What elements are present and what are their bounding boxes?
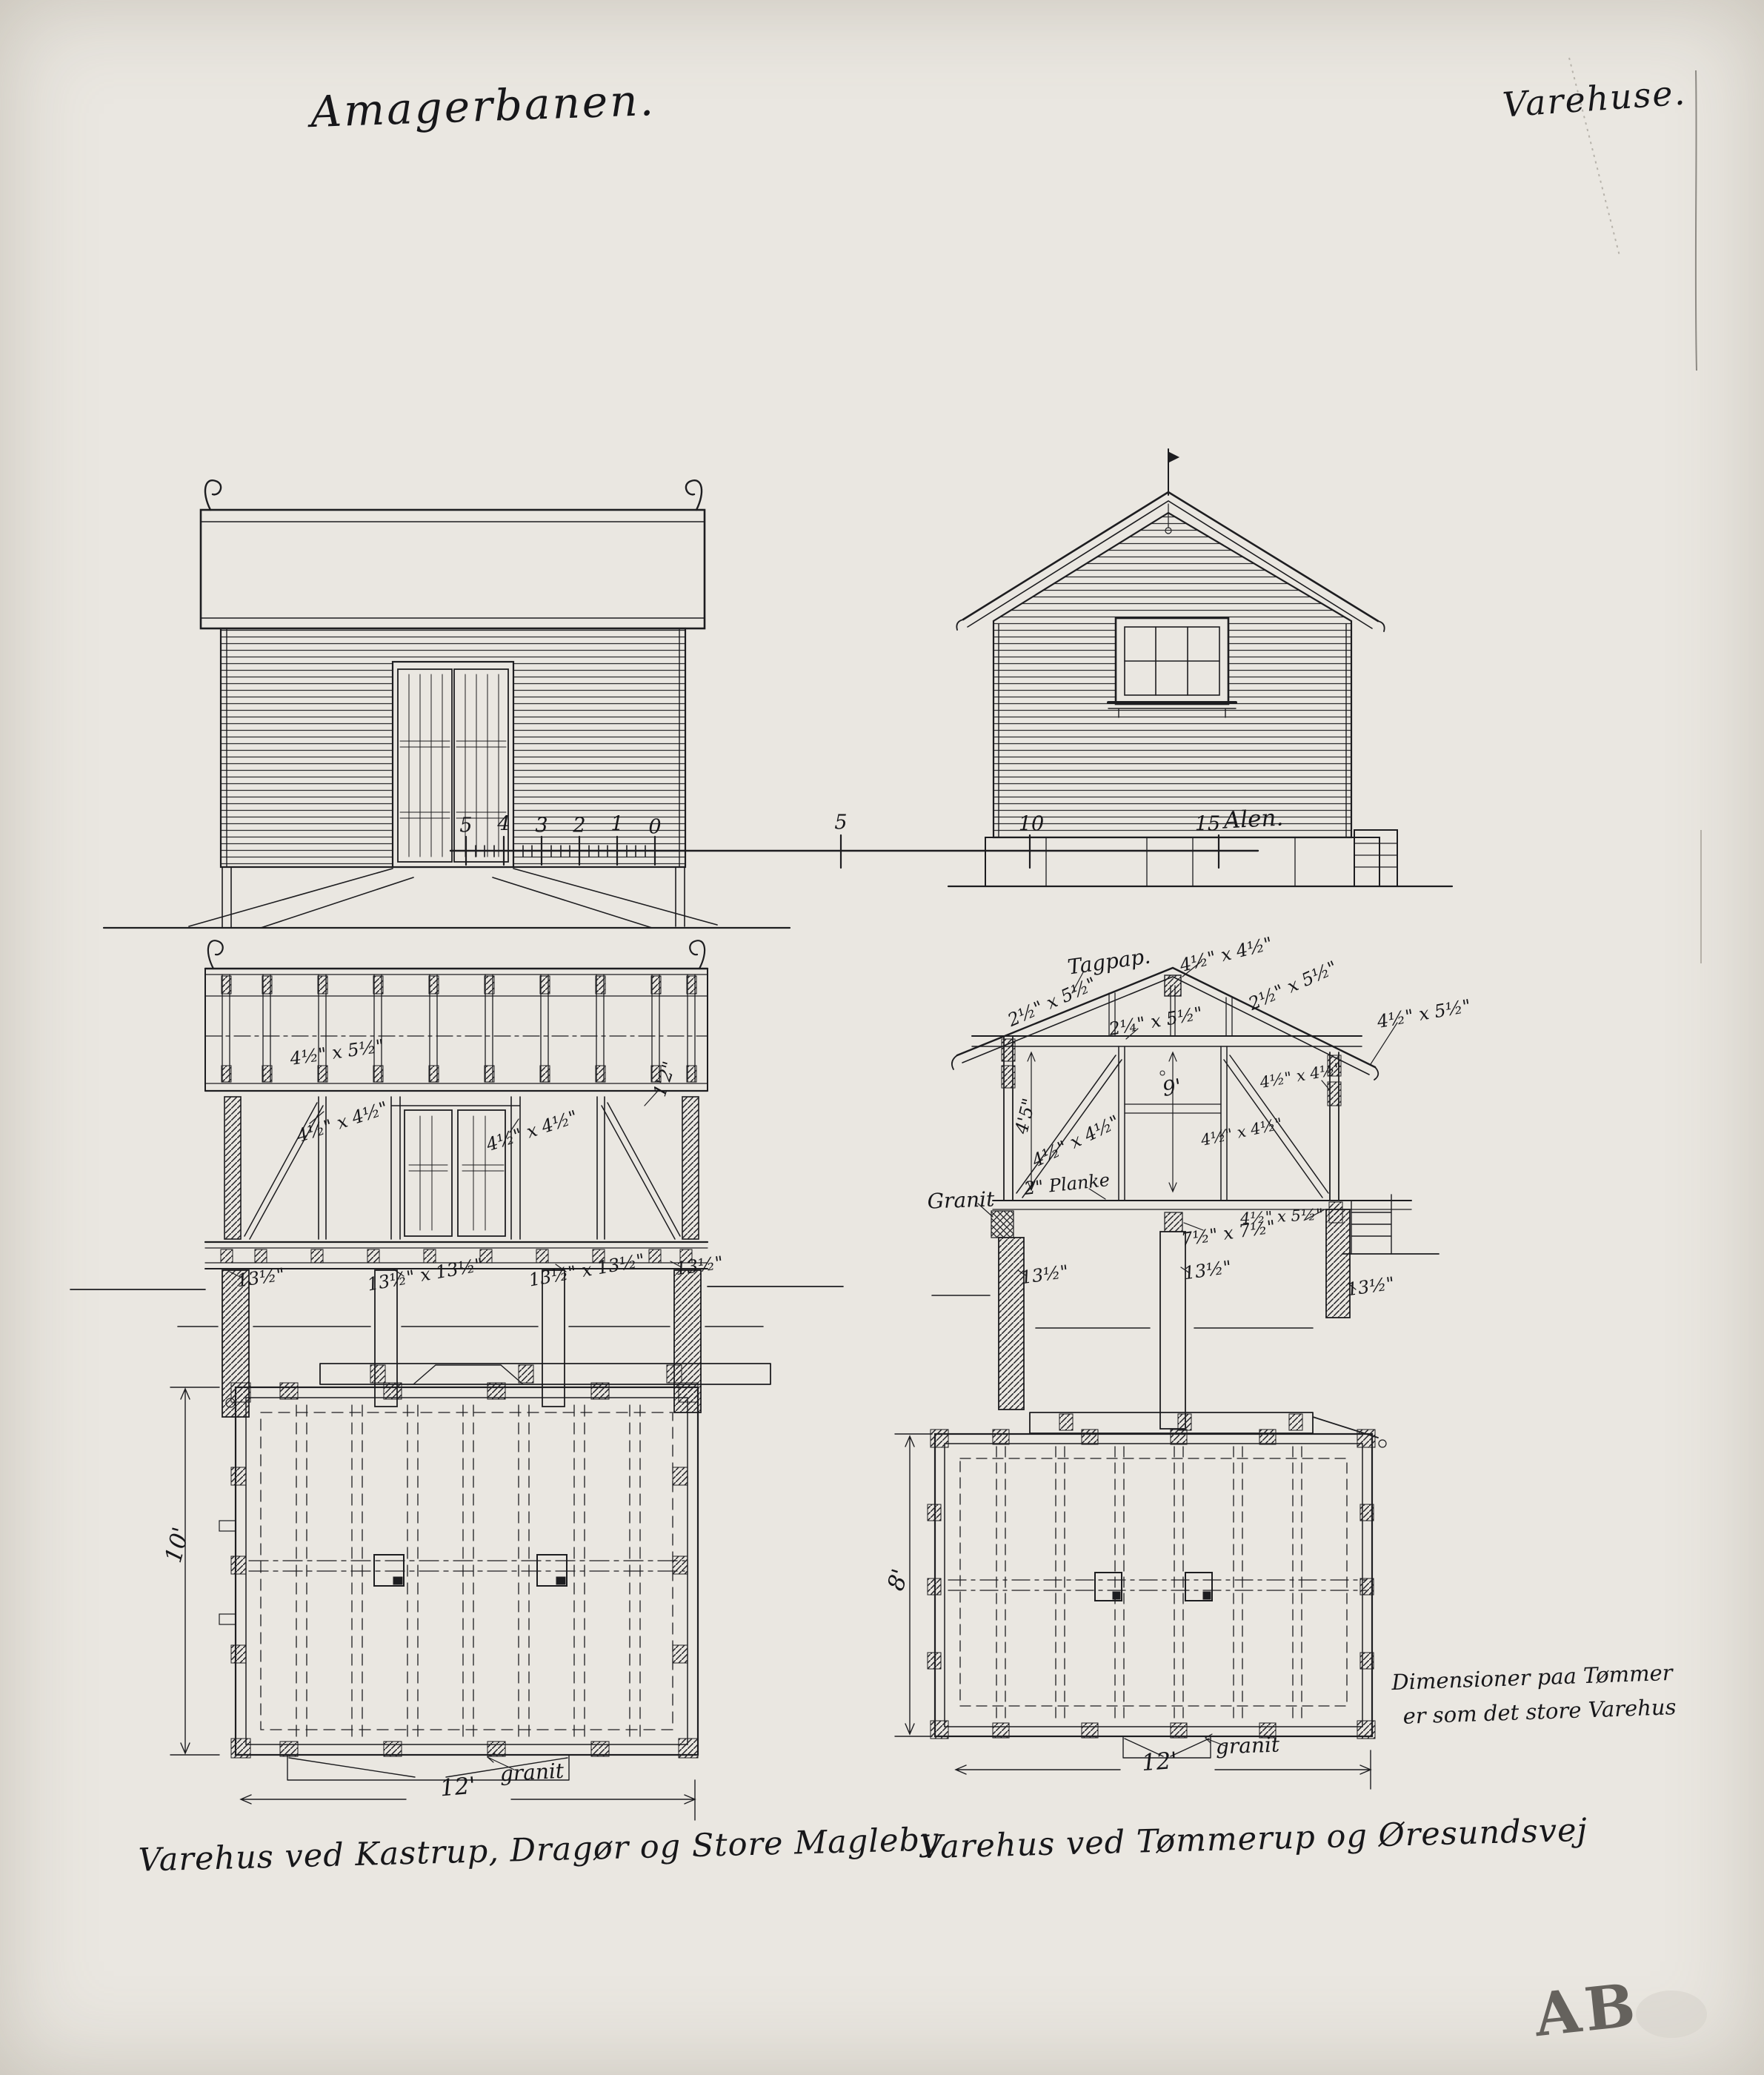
plan-small [895, 1412, 1386, 1789]
drawing-title: Amagerbanen. [310, 79, 656, 133]
scale-minor-4: 4 [497, 814, 510, 834]
scale-major-10: 10 [1019, 814, 1044, 834]
label-granit-plan-large: granit [499, 1761, 565, 1784]
scale-minor-1: 1 [610, 814, 623, 834]
plan-large [170, 1364, 770, 1820]
scale-minor-3: 3 [535, 816, 547, 836]
label-granit-section: Granit [927, 1189, 995, 1212]
drawing-linework [0, 0, 1764, 2075]
scale-major-5: 5 [834, 813, 847, 833]
scale-minor-2: 2 [573, 816, 585, 836]
dim-plan-small-width: 12' [1141, 1750, 1178, 1775]
section-large [70, 940, 843, 1417]
dim-plan-large-width: 12' [439, 1774, 476, 1800]
drawing-sheet: Amagerbanen. Varehuse. 5 4 3 2 1 0 5 10 … [0, 0, 1764, 2075]
paper-artifacts [1569, 58, 1707, 2038]
scale-unit: Alen. [1223, 806, 1284, 832]
scale-minor-5: 5 [459, 816, 472, 836]
scale-minor-0: 0 [648, 817, 661, 837]
section-small [932, 961, 1439, 1429]
elevation-front [104, 480, 790, 928]
label-granit-plan-small: granit [1215, 1735, 1279, 1758]
archive-stamp: AB [1531, 1975, 1642, 2045]
dim-height-mid: 9' [1161, 1076, 1183, 1100]
scale-major-15: 15 [1195, 814, 1220, 834]
